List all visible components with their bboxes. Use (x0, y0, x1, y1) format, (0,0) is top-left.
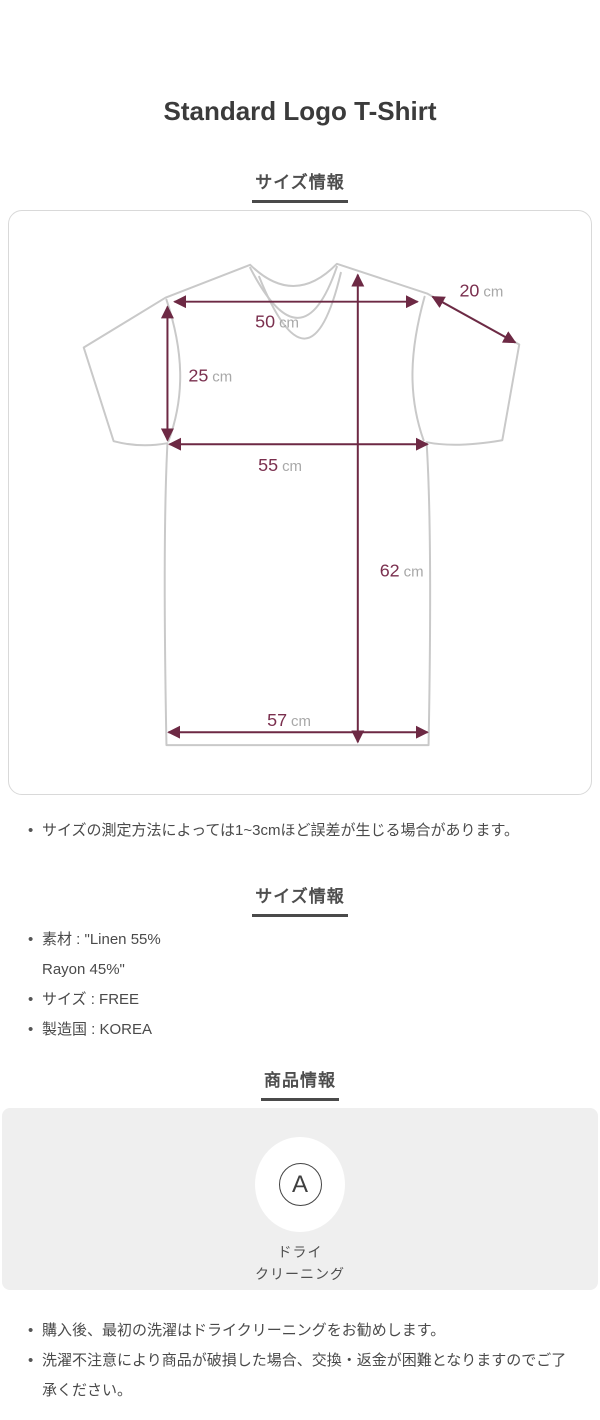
dry-clean-circle-a-icon: A (279, 1163, 322, 1206)
material-line1: 素材 : "Linen 55% (42, 925, 580, 955)
product-note-item: 洗濯不注意により商品が破損した場合、交換・返金が困難となりますのでご了承ください… (28, 1346, 580, 1406)
care-label-line2: クリーニング (255, 1263, 345, 1285)
dry-clean-symbol-icon: A (255, 1137, 345, 1232)
size-note-list: サイズの測定方法によっては1~3cmほど誤差が生じる場合があります。 (0, 819, 600, 843)
size-diagram-heading-label: サイズ情報 (252, 173, 348, 203)
size-diagram-section-heading: サイズ情報 (0, 173, 600, 203)
product-note-item: 購入後、最初の洗濯はドライクリーニングをお勧めします。 (28, 1316, 580, 1346)
product-detail-page: Standard Logo T-Shirt サイズ情報 50cm (0, 0, 600, 1406)
measure-label-sleeve: 20cm (459, 281, 503, 301)
size-info-section-heading: サイズ情報 (0, 887, 600, 917)
product-info-heading-label: 商品情報 (261, 1071, 339, 1101)
country-item: 製造国 : KOREA (28, 1015, 580, 1045)
product-info-section-heading: 商品情報 (0, 1071, 600, 1101)
tshirt-outline-icon (84, 264, 520, 745)
care-instructions-box: A ドライ クリーニング (2, 1108, 598, 1290)
care-label-line1: ドライ (255, 1241, 345, 1263)
material-line2: Rayon 45%" (42, 955, 580, 985)
size-info-heading-label: サイズ情報 (252, 887, 348, 917)
size-item: サイズ : FREE (28, 985, 580, 1015)
page-title: Standard Logo T-Shirt (0, 0, 600, 127)
material-item: 素材 : "Linen 55% Rayon 45%" (28, 925, 580, 985)
care-symbol-label: ドライ クリーニング (255, 1241, 345, 1285)
product-note-list: 購入後、最初の洗濯はドライクリーニングをお勧めします。 洗濯不注意により商品が破… (0, 1316, 600, 1406)
size-info-list: 素材 : "Linen 55% Rayon 45%" サイズ : FREE 製造… (0, 925, 600, 1045)
size-diagram-box: 50cm 20cm 25cm 55cm 62cm (8, 210, 592, 795)
size-note-item: サイズの測定方法によっては1~3cmほど誤差が生じる場合があります。 (28, 819, 580, 843)
tshirt-measurement-diagram: 50cm 20cm 25cm 55cm 62cm (9, 211, 591, 794)
care-symbol-letter: A (292, 1171, 308, 1199)
